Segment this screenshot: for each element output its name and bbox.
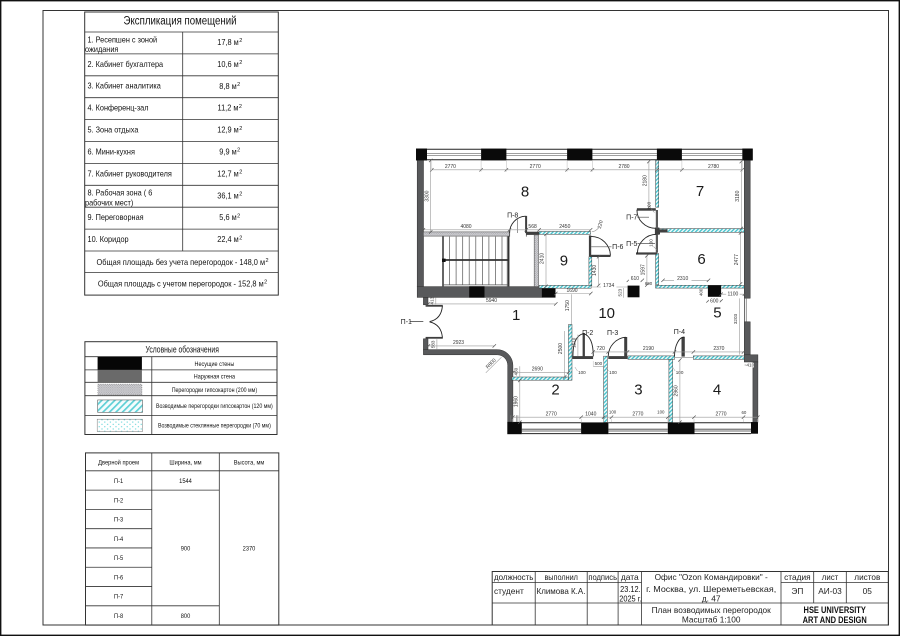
svg-text:2780: 2780	[618, 164, 629, 170]
svg-text:9: 9	[560, 252, 568, 269]
svg-text:2450: 2450	[559, 224, 570, 230]
svg-text:2770: 2770	[632, 411, 643, 417]
svg-text:5,6 м: 5,6 м	[219, 212, 237, 222]
svg-text:Экспликация помещений: Экспликация помещений	[124, 16, 237, 28]
svg-text:должность: должность	[494, 572, 533, 582]
svg-text:11,2 м: 11,2 м	[218, 103, 239, 113]
svg-text:Общая площадь с учетом перегор: Общая площадь с учетом перегородок - 152…	[98, 278, 264, 288]
svg-text:2923: 2923	[453, 340, 464, 346]
svg-text:9,9 м: 9,9 м	[219, 147, 237, 157]
svg-text:2310: 2310	[677, 276, 688, 282]
svg-text:2: 2	[239, 60, 242, 66]
svg-text:П-5: П-5	[626, 241, 637, 248]
svg-text:1597: 1597	[641, 264, 647, 275]
svg-text:Масштаб 1:100: Масштаб 1:100	[682, 615, 741, 625]
svg-text:6: 6	[697, 251, 705, 268]
svg-text:План возводимых перегородок: План возводимых перегородок	[652, 605, 772, 615]
svg-text:П-4: П-4	[114, 536, 123, 543]
svg-text:ЭП: ЭП	[791, 586, 803, 596]
svg-text:2477: 2477	[734, 254, 740, 265]
svg-text:4. Конференц-зал: 4. Конференц-зал	[88, 103, 149, 113]
svg-text:568: 568	[528, 224, 537, 230]
svg-text:7: 7	[696, 183, 704, 200]
svg-text:410: 410	[746, 363, 754, 368]
svg-text:Дверной проем: Дверной проем	[98, 458, 139, 466]
svg-text:П-3: П-3	[114, 517, 123, 524]
svg-text:2: 2	[239, 104, 242, 110]
svg-text:100: 100	[609, 409, 617, 414]
svg-text:3203: 3203	[733, 313, 738, 324]
svg-text:4: 4	[713, 381, 721, 398]
svg-text:4080: 4080	[460, 224, 471, 230]
svg-text:2770: 2770	[546, 411, 557, 417]
svg-text:2: 2	[239, 38, 242, 44]
svg-text:1. Ресепшен с зоной: 1. Ресепшен с зоной	[88, 34, 158, 44]
svg-text:Условные обозначения: Условные обозначения	[146, 344, 219, 354]
svg-text:2780: 2780	[708, 164, 719, 170]
svg-text:7. Кабинет руководителя: 7. Кабинет руководителя	[88, 168, 172, 178]
svg-text:Ширина, мм: Ширина, мм	[169, 459, 201, 466]
svg-text:1544: 1544	[179, 478, 192, 485]
svg-text:П-1: П-1	[114, 478, 123, 485]
svg-text:10,6 м: 10,6 м	[217, 59, 239, 69]
svg-text:2. Кабинет бухгалтера: 2. Кабинет бухгалтера	[88, 59, 164, 69]
svg-text:800: 800	[181, 613, 191, 620]
svg-text:2: 2	[237, 82, 240, 88]
svg-text:8,8 м: 8,8 м	[219, 81, 237, 91]
svg-text:2500: 2500	[558, 343, 564, 354]
svg-text:ART AND DESIGN: ART AND DESIGN	[803, 615, 867, 625]
svg-text:8: 8	[521, 183, 529, 200]
svg-text:2: 2	[239, 170, 242, 176]
svg-text:5. Зона отдыха: 5. Зона отдыха	[88, 125, 139, 135]
svg-text:690: 690	[645, 281, 653, 286]
svg-text:2: 2	[239, 192, 242, 198]
svg-text:2: 2	[239, 235, 242, 241]
svg-text:100: 100	[657, 409, 665, 414]
svg-text:П-7: П-7	[114, 594, 123, 601]
svg-text:АИ-03: АИ-03	[818, 586, 842, 596]
svg-text:2190: 2190	[643, 346, 654, 352]
svg-text:П-2: П-2	[582, 330, 593, 337]
svg-text:22,4 м: 22,4 м	[217, 234, 239, 244]
svg-text:Высота, мм: Высота, мм	[234, 459, 265, 466]
svg-text:д. 47: д. 47	[702, 593, 721, 603]
svg-text:2690: 2690	[532, 367, 543, 373]
svg-text:2370: 2370	[243, 546, 256, 553]
svg-text:2: 2	[551, 382, 559, 399]
svg-text:2770: 2770	[530, 164, 541, 170]
svg-text:2410: 2410	[540, 253, 546, 264]
svg-text:2770: 2770	[445, 164, 456, 170]
svg-text:П-7: П-7	[626, 215, 637, 222]
svg-text:3180: 3180	[735, 190, 741, 201]
svg-text:Возводимые перегородки гипсока: Возводимые перегородки гипсокартон (120 …	[156, 403, 273, 410]
svg-text:900: 900	[181, 546, 191, 553]
svg-text:П-3: П-3	[607, 330, 618, 337]
svg-text:2: 2	[237, 213, 240, 219]
svg-text:ожидания: ожидания	[85, 44, 118, 54]
svg-text:2: 2	[264, 280, 267, 286]
svg-text:5940: 5940	[486, 298, 497, 304]
svg-text:Возводимые стеклянные перегоро: Возводимые стеклянные перегородки (70 мм…	[158, 423, 271, 430]
svg-text:1430: 1430	[592, 265, 598, 276]
svg-text:1100: 1100	[728, 292, 739, 298]
svg-text:выполнил: выполнил	[544, 572, 578, 582]
svg-text:подпись: подпись	[588, 572, 617, 582]
svg-text:рабочих мест): рабочих мест)	[85, 198, 133, 208]
svg-text:720: 720	[597, 346, 606, 352]
svg-text:05: 05	[863, 586, 873, 596]
svg-text:2: 2	[239, 126, 242, 132]
svg-text:17,8 м: 17,8 м	[217, 37, 239, 47]
svg-text:500: 500	[595, 361, 603, 366]
svg-text:610: 610	[631, 276, 640, 282]
svg-text:2180: 2180	[643, 175, 649, 186]
svg-text:П-5: П-5	[114, 555, 123, 562]
svg-text:523: 523	[618, 288, 623, 296]
svg-text:6. Мини-кухня: 6. Мини-кухня	[88, 146, 135, 156]
svg-text:8. Рабочая зона ( 6: 8. Рабочая зона ( 6	[88, 188, 153, 198]
svg-text:П-6: П-6	[114, 574, 123, 581]
svg-text:HSE UNIVERSITY: HSE UNIVERSITY	[804, 605, 866, 615]
svg-text:Общая площадь без учета перего: Общая площадь без учета перегородок - 14…	[97, 257, 266, 267]
svg-text:П-4: П-4	[674, 329, 685, 336]
svg-text:12,9 м: 12,9 м	[217, 125, 239, 135]
svg-text:1960: 1960	[513, 396, 519, 407]
svg-text:10: 10	[598, 305, 615, 322]
svg-text:583: 583	[431, 340, 436, 348]
svg-text:2: 2	[266, 258, 269, 264]
svg-text:студент: студент	[494, 586, 524, 596]
svg-text:Офис "Ozon Командировки" -: Офис "Ozon Командировки" -	[655, 572, 768, 582]
svg-text:Несущие стены: Несущие стены	[195, 361, 235, 368]
svg-text:П-2: П-2	[114, 497, 123, 504]
svg-text:стадия: стадия	[784, 572, 811, 582]
svg-text:П-8: П-8	[114, 613, 123, 620]
svg-text:П-6: П-6	[612, 244, 623, 251]
svg-text:100: 100	[649, 239, 654, 247]
svg-text:1040: 1040	[585, 411, 596, 417]
svg-text:100: 100	[646, 201, 651, 209]
svg-text:1750: 1750	[565, 300, 571, 311]
svg-text:1690: 1690	[566, 288, 577, 294]
svg-text:П-1: П-1	[401, 319, 412, 326]
svg-text:3300: 3300	[424, 190, 430, 201]
svg-text:Наружная стена: Наружная стена	[194, 374, 236, 381]
svg-text:2025 г.: 2025 г.	[619, 593, 641, 603]
svg-text:Климова К.А.: Климова К.А.	[537, 586, 586, 596]
svg-text:г. Москва, ул. Шереметьевская,: г. Москва, ул. Шереметьевская,	[646, 584, 776, 594]
svg-text:листов: листов	[854, 572, 881, 582]
svg-text:36,1 м: 36,1 м	[217, 190, 239, 200]
svg-text:дата: дата	[621, 572, 639, 582]
svg-text:3: 3	[634, 382, 642, 399]
svg-text:100: 100	[609, 370, 617, 375]
svg-text:12,7 м: 12,7 м	[217, 168, 239, 178]
svg-text:2770: 2770	[715, 411, 726, 417]
svg-text:400: 400	[699, 288, 704, 296]
svg-text:1510: 1510	[572, 337, 577, 348]
svg-text:2: 2	[237, 148, 240, 154]
svg-text:9. Переговорная: 9. Переговорная	[88, 212, 144, 222]
svg-text:3. Кабинет аналитика: 3. Кабинет аналитика	[88, 81, 162, 91]
svg-text:60: 60	[741, 410, 746, 415]
svg-text:10. Коридор: 10. Коридор	[88, 234, 129, 244]
svg-text:2960: 2960	[674, 385, 680, 396]
svg-text:Перегородки гипсокартон (200 м: Перегородки гипсокартон (200 мм)	[172, 387, 257, 394]
svg-text:1: 1	[512, 307, 520, 324]
svg-text:лист: лист	[822, 572, 839, 582]
svg-text:2370: 2370	[713, 346, 724, 352]
svg-text:100: 100	[578, 370, 586, 375]
svg-text:600: 600	[710, 298, 719, 304]
svg-text:П-8: П-8	[507, 212, 518, 219]
svg-text:5: 5	[713, 305, 721, 322]
svg-text:413: 413	[430, 296, 435, 304]
svg-text:1734: 1734	[603, 283, 614, 289]
